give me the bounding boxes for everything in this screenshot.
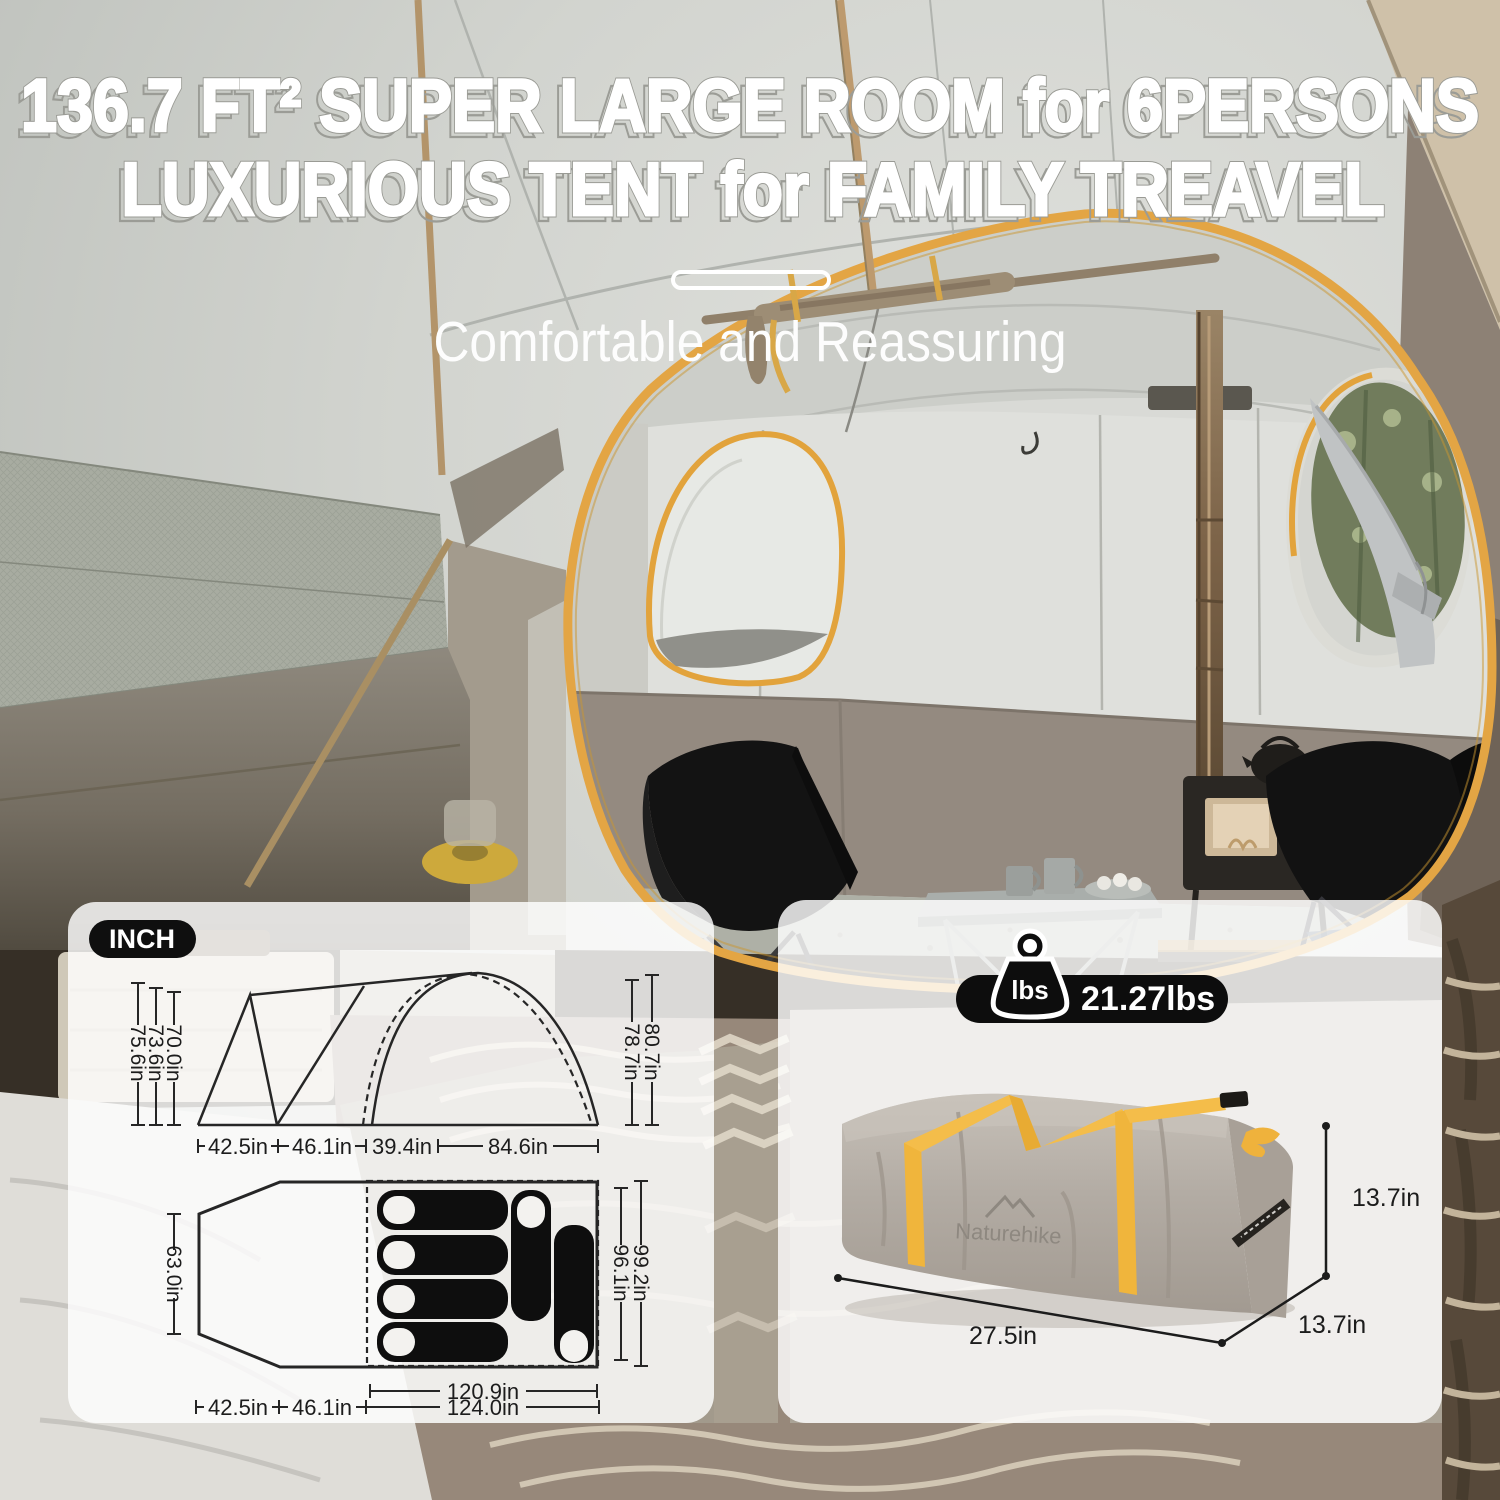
svg-text:78.7in: 78.7in	[620, 1023, 643, 1080]
svg-text:27.5in: 27.5in	[969, 1322, 1037, 1350]
svg-text:LUXURIOUS TENT for FAMILY TREA: LUXURIOUS TENT for FAMILY TREAVEL	[122, 147, 1385, 231]
svg-text:46.1in: 46.1in	[292, 1395, 352, 1420]
svg-text:80.7in: 80.7in	[640, 1023, 663, 1080]
svg-text:13.7in: 13.7in	[1298, 1311, 1366, 1339]
svg-text:Comfortable and Reassuring: Comfortable and Reassuring	[434, 310, 1067, 374]
svg-text:42.5in: 42.5in	[208, 1134, 268, 1159]
svg-text:lbs: lbs	[1011, 975, 1049, 1005]
svg-text:13.7in: 13.7in	[1352, 1184, 1420, 1212]
svg-text:42.5in: 42.5in	[208, 1395, 268, 1420]
svg-text:70.0in: 70.0in	[162, 1024, 185, 1081]
svg-text:136.7 FT² SUPER LARGE ROOM for: 136.7 FT² SUPER LARGE ROOM for 6PERSONS	[21, 64, 1479, 147]
svg-text:124.0in: 124.0in	[447, 1395, 519, 1420]
svg-text:39.4in: 39.4in	[372, 1134, 432, 1159]
svg-text:99.2in: 99.2in	[629, 1244, 652, 1301]
svg-text:84.6in: 84.6in	[488, 1134, 548, 1159]
svg-text:21.27lbs: 21.27lbs	[1081, 980, 1215, 1018]
svg-text:46.1in: 46.1in	[292, 1134, 352, 1159]
svg-text:63.0in: 63.0in	[162, 1245, 185, 1302]
svg-text:96.1in: 96.1in	[609, 1244, 632, 1301]
svg-text:INCH: INCH	[109, 924, 175, 954]
